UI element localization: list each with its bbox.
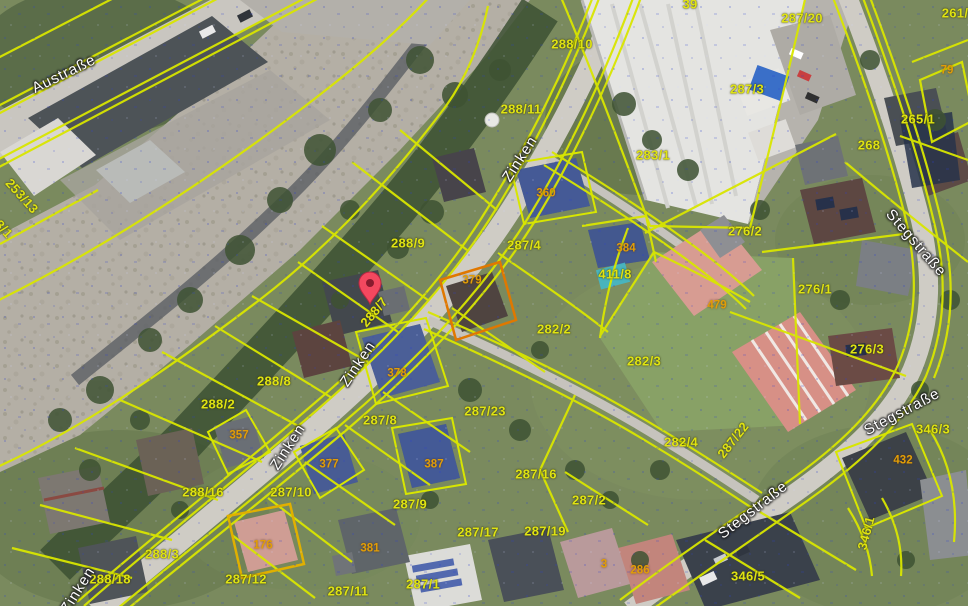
location-pin[interactable] (357, 271, 383, 305)
aerial-imagery (0, 0, 968, 606)
map-canvas[interactable]: 287/20261/39288/10288/11283/1287/3265/12… (0, 0, 968, 606)
